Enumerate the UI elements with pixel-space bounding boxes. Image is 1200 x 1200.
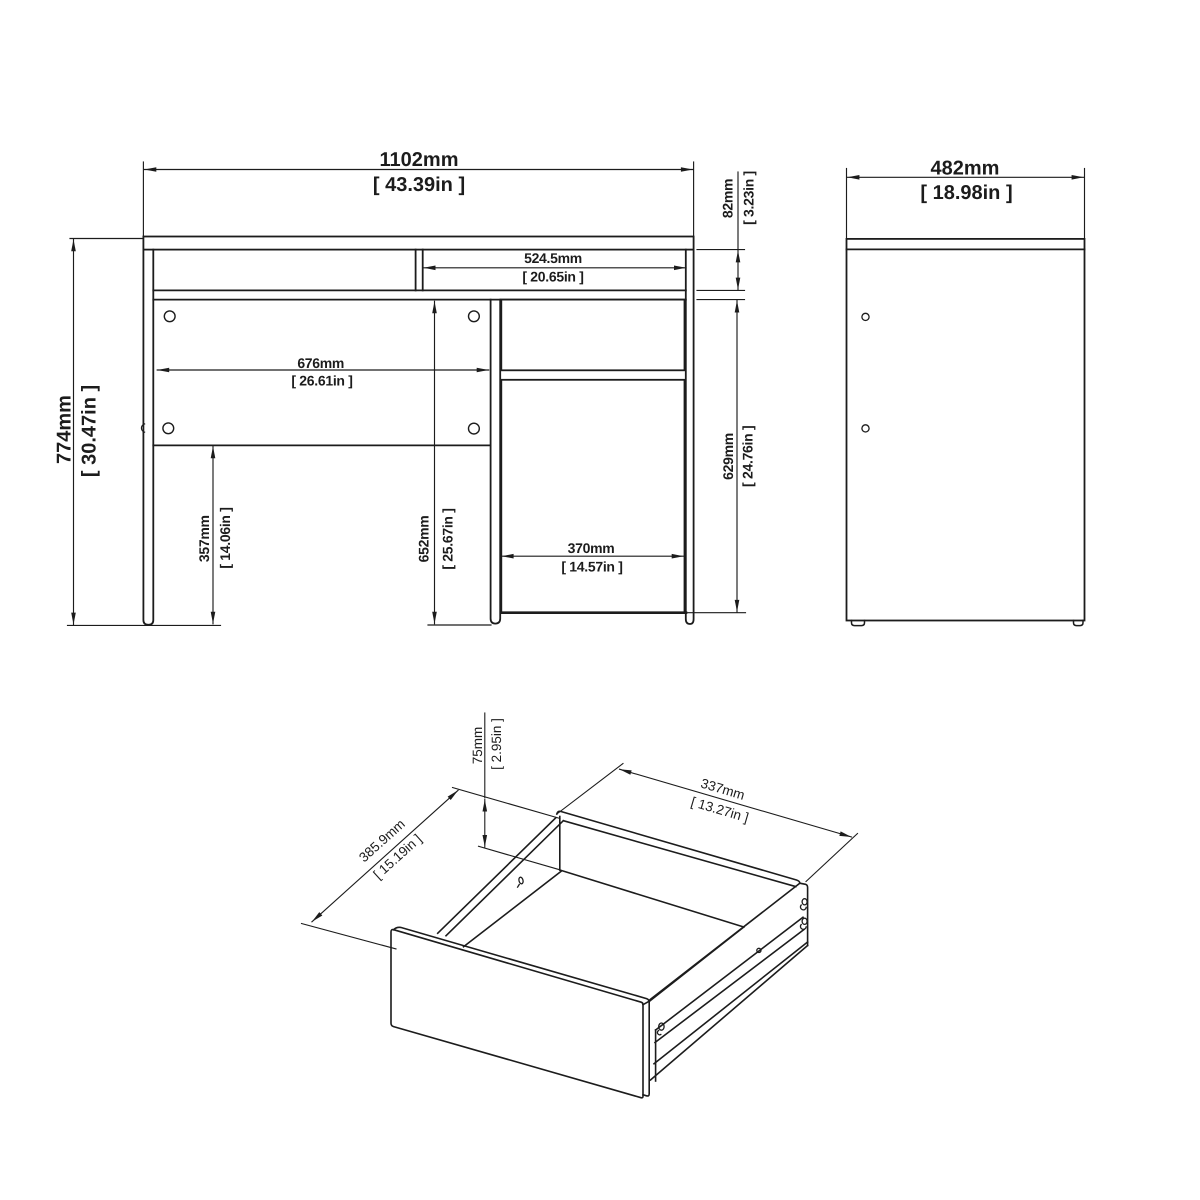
svg-text:82mm: 82mm bbox=[720, 179, 736, 218]
svg-text:482mm: 482mm bbox=[931, 158, 1000, 180]
svg-text:[ 43.39in ]: [ 43.39in ] bbox=[373, 174, 465, 196]
svg-text:676mm: 676mm bbox=[297, 355, 344, 371]
svg-text:[ 3.23in ]: [ 3.23in ] bbox=[741, 171, 757, 225]
svg-text:[ 14.06in ]: [ 14.06in ] bbox=[217, 507, 233, 568]
svg-text:774mm: 774mm bbox=[54, 395, 76, 464]
svg-text:[ 25.67in ]: [ 25.67in ] bbox=[440, 508, 456, 569]
svg-text:[ 30.47in ]: [ 30.47in ] bbox=[79, 385, 101, 477]
svg-text:652mm: 652mm bbox=[416, 516, 432, 563]
svg-text:[ 18.98in ]: [ 18.98in ] bbox=[920, 182, 1012, 204]
svg-text:1102mm: 1102mm bbox=[380, 149, 459, 171]
svg-text:[ 20.65in ]: [ 20.65in ] bbox=[522, 269, 583, 285]
svg-text:[ 14.57in ]: [ 14.57in ] bbox=[561, 559, 622, 575]
svg-text:[ 24.76in ]: [ 24.76in ] bbox=[740, 426, 756, 487]
svg-text:[ 26.61in ]: [ 26.61in ] bbox=[291, 373, 352, 389]
svg-text:[ 2.95in ]: [ 2.95in ] bbox=[489, 718, 504, 770]
svg-text:629mm: 629mm bbox=[720, 433, 736, 480]
svg-text:357mm: 357mm bbox=[196, 515, 212, 562]
svg-text:370mm: 370mm bbox=[568, 540, 615, 556]
svg-text:75mm: 75mm bbox=[470, 727, 485, 765]
svg-text:524.5mm: 524.5mm bbox=[524, 250, 582, 266]
